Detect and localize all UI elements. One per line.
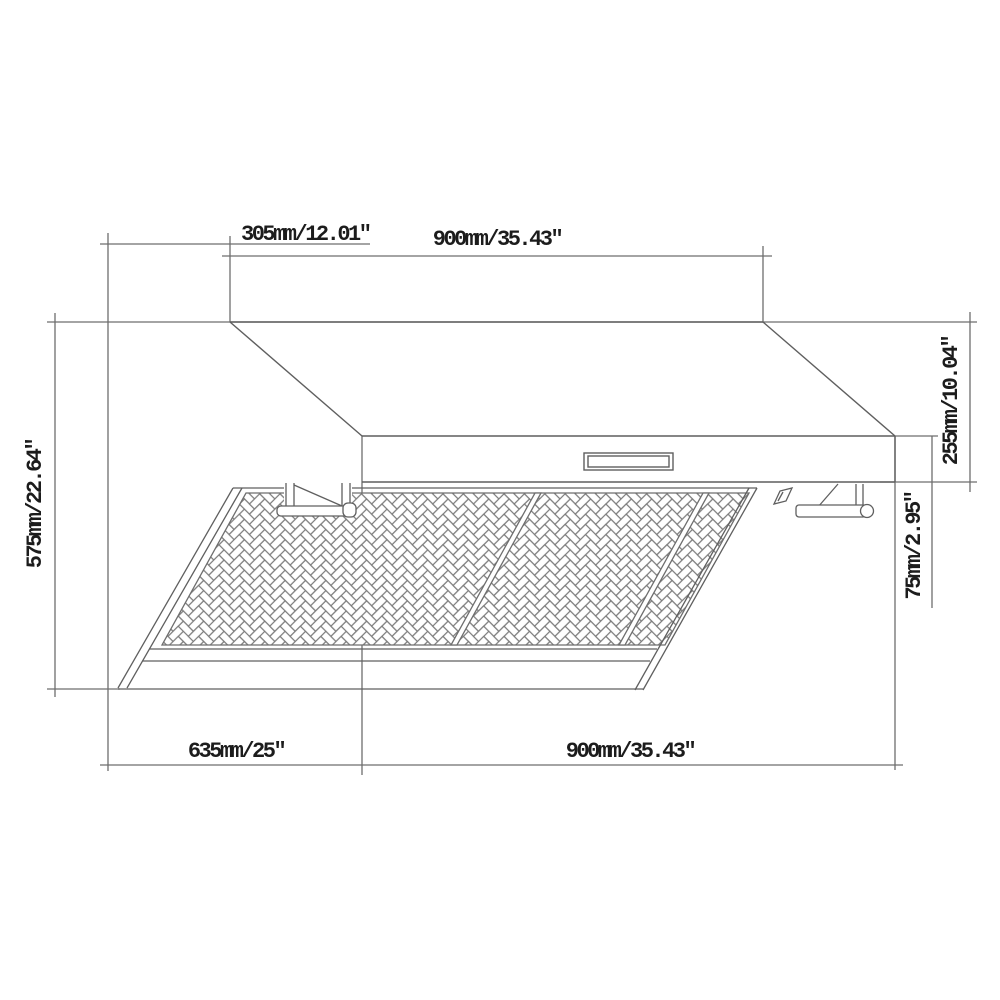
hood-body [362, 436, 895, 482]
right-handle [774, 484, 874, 518]
control-panel-window [588, 456, 669, 467]
dim-label-right-upper-height: 255mm/10.04″ [941, 337, 963, 465]
dim-label-right-lower-height: 75mm/2.95″ [904, 492, 926, 599]
dim-label-bottom-width: 900mm/35.43″ [566, 741, 694, 763]
dim-label-top-width: 900mm/35.43″ [433, 229, 561, 251]
filter-area [118, 488, 757, 690]
handle-brace [818, 484, 838, 507]
dim-label-top-offset: 305mm/12.01″ [241, 224, 369, 246]
handle-end-cap [861, 505, 874, 518]
hood-line-art [0, 0, 1000, 1000]
hood-canopy [230, 322, 895, 436]
handle-rod [796, 505, 866, 517]
left-handle [277, 483, 356, 517]
dim-label-bottom-depth: 635mm/25″ [188, 741, 284, 763]
lamp-icon [774, 488, 792, 504]
handle-end-cap [343, 503, 356, 517]
dim-label-left-height: 575mm/22.64″ [25, 440, 47, 568]
hood-dimension-drawing: 305mm/12.01″ 900mm/35.43″ 575mm/22.64″ 2… [0, 0, 1000, 1000]
handle-rod [277, 506, 349, 516]
